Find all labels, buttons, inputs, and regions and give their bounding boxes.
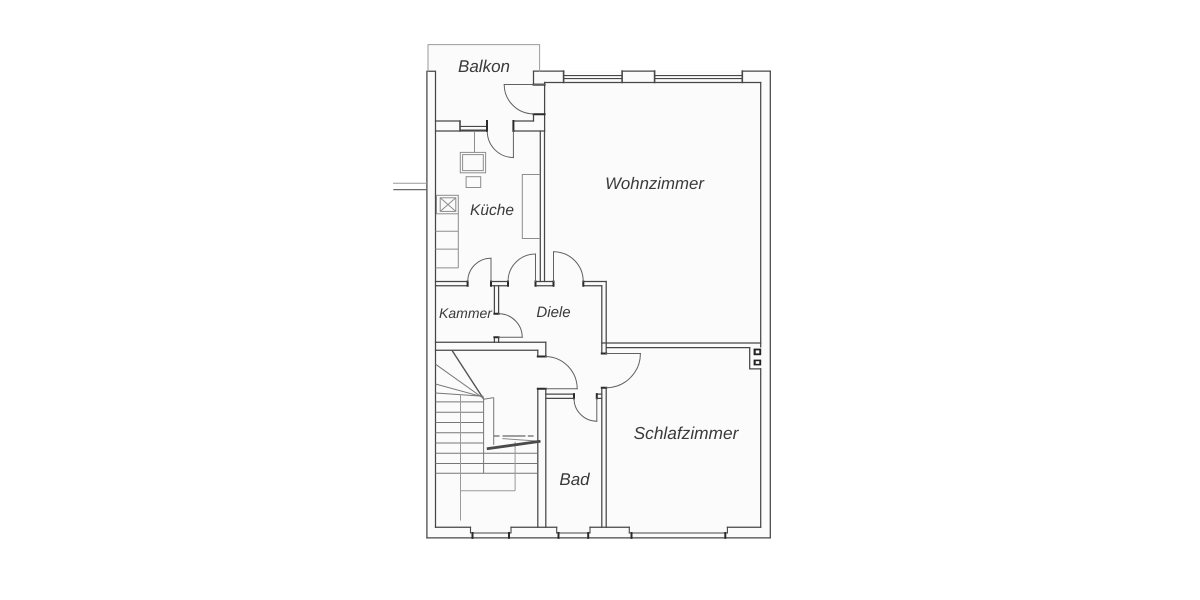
svg-text:Küche: Küche [470,202,514,219]
svg-text:Wohnzimmer: Wohnzimmer [605,174,705,193]
svg-text:Diele: Diele [536,304,570,321]
svg-text:Kammer: Kammer [439,305,493,321]
svg-text:Balkon: Balkon [458,57,510,76]
svg-text:Bad: Bad [559,470,590,489]
svg-text:Schlafzimmer: Schlafzimmer [634,423,740,443]
